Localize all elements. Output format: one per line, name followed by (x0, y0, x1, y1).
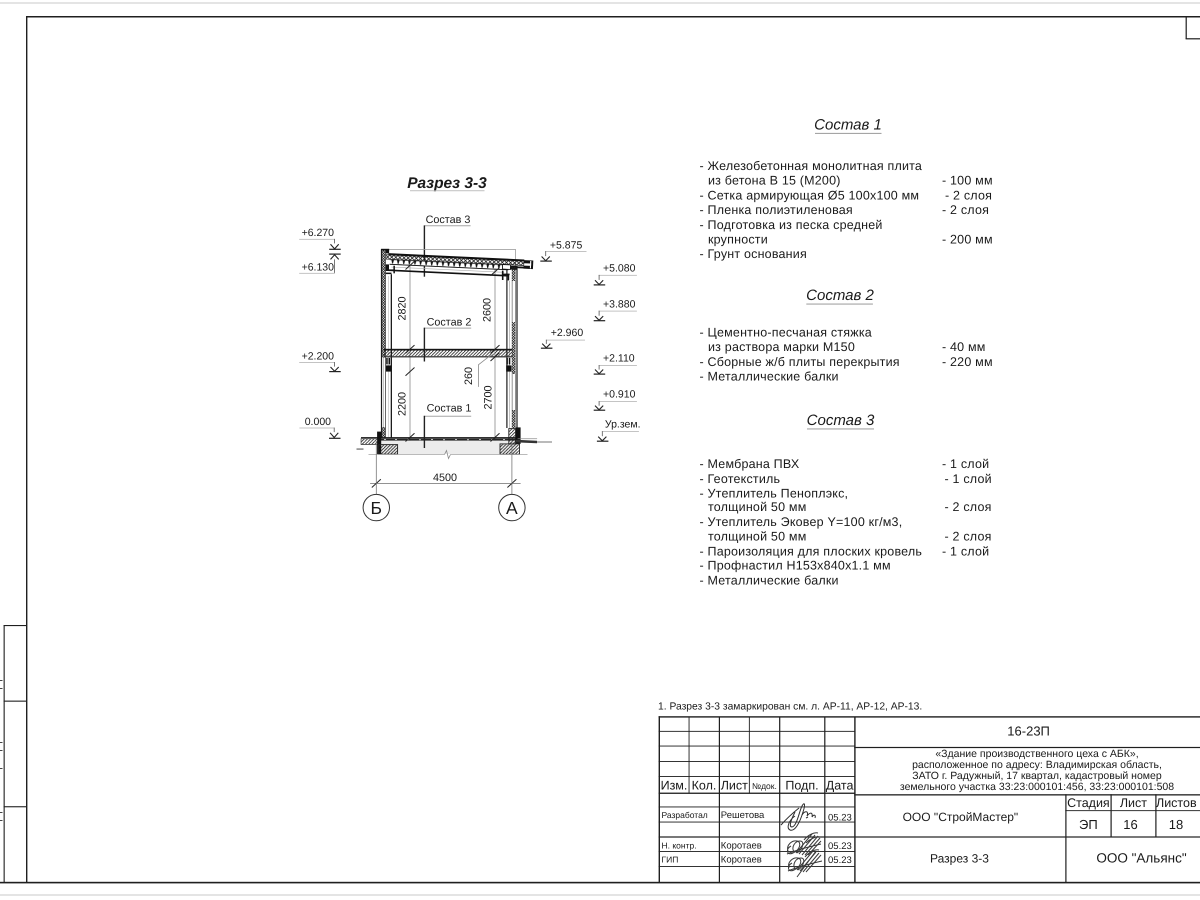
svg-text:Дата: Дата (826, 779, 854, 793)
svg-text:- Утеплитель Пеноплэкс,: - Утеплитель Пеноплэкс, (700, 487, 849, 501)
svg-text:- 1 слой: - 1 слой (945, 472, 992, 486)
svg-text:А: А (506, 498, 518, 518)
svg-text:Состав 3: Состав 3 (426, 214, 471, 226)
svg-text:крупности: крупности (708, 233, 768, 247)
svg-text:толщиной 50 мм: толщиной 50 мм (708, 530, 807, 544)
svg-text:+6.130: +6.130 (302, 261, 335, 273)
svg-text:ООО "Альянс": ООО "Альянс" (1096, 851, 1186, 866)
svg-text:- Геотекстиль: - Геотекстиль (700, 472, 781, 486)
svg-text:+5.875: +5.875 (550, 240, 583, 252)
svg-text:толщиной 50 мм: толщиной 50 мм (708, 500, 807, 514)
svg-text:2200: 2200 (397, 392, 409, 416)
svg-text:Состав 2: Состав 2 (806, 287, 874, 304)
svg-text:- Сборные ж/б плиты перекрытия: - Сборные ж/б плиты перекрытия (700, 355, 900, 369)
svg-text:№док.: №док. (752, 781, 777, 791)
svg-text:- Пароизоляция для плоских кро: - Пароизоляция для плоских кровель (700, 544, 923, 558)
svg-text:260: 260 (463, 367, 475, 385)
svg-text:1. Разрез 3-3 замаркирован см.: 1. Разрез 3-3 замаркирован см. л. АР-11,… (658, 701, 922, 712)
svg-text:Кол.: Кол. (692, 779, 717, 793)
svg-text:- 100 мм: - 100 мм (942, 174, 993, 188)
svg-text:- Утеплитель Эковер Y=100 кг/м: - Утеплитель Эковер Y=100 кг/м3, (700, 515, 903, 529)
svg-text:Н. контр.: Н. контр. (662, 840, 697, 850)
svg-text:ГИП: ГИП (662, 855, 679, 865)
svg-text:- Цементно-песчаная стяжка: - Цементно-песчаная стяжка (700, 325, 872, 339)
svg-text:Б: Б (371, 498, 382, 518)
svg-text:Разработал: Разработал (662, 810, 708, 820)
svg-text:- 2 слоя: - 2 слоя (945, 189, 992, 203)
svg-text:- Железобетонная монолитная п: - Железобетонная монолитная плита (700, 159, 923, 173)
svg-text:2700: 2700 (483, 385, 495, 409)
svg-text:- Пленка полиэтиленовая: - Пленка полиэтиленовая (700, 203, 853, 217)
svg-text:Стадия: Стадия (1067, 796, 1110, 810)
svg-text:- 1 слой: - 1 слой (942, 544, 989, 558)
svg-text:- 200 мм: - 200 мм (942, 233, 993, 247)
svg-text:из бетона В 15 (М200): из бетона В 15 (М200) (708, 174, 841, 188)
svg-text:ООО "СтройМастер": ООО "СтройМастер" (903, 810, 1019, 824)
svg-text:+5.080: +5.080 (603, 262, 636, 274)
svg-text:+3.880: +3.880 (603, 298, 636, 310)
svg-text:Ур.зем.: Ур.зем. (605, 419, 641, 431)
svg-text:Подп.: Подп. (785, 779, 818, 793)
svg-text:из раствора марки М150: из раствора марки М150 (708, 340, 855, 354)
svg-text:- 2 слоя: - 2 слоя (945, 500, 992, 514)
svg-text:Разрез 3-3: Разрез 3-3 (930, 852, 989, 866)
svg-text:- Грунт основания: - Грунт основания (700, 247, 807, 261)
svg-text:Коротаев: Коротаев (721, 855, 762, 866)
svg-text:Разрез 3-3: Разрез 3-3 (407, 175, 487, 192)
svg-text:2600: 2600 (481, 298, 493, 322)
svg-text:Состав 2: Состав 2 (427, 316, 472, 328)
svg-text:- 220 мм: - 220 мм (942, 355, 993, 369)
svg-text:- 1 слой: - 1 слой (942, 457, 989, 471)
svg-text:+2.200: +2.200 (302, 351, 335, 363)
svg-text:Решетова: Решетова (721, 810, 765, 821)
svg-text:Изм.: Изм. (661, 779, 688, 793)
svg-text:+6.270: +6.270 (302, 227, 335, 239)
svg-text:16: 16 (1123, 817, 1137, 832)
svg-text:- Подготовка из песка средней: - Подготовка из песка средней (700, 218, 883, 232)
svg-text:Коротаев: Коротаев (721, 840, 762, 851)
svg-text:- 40 мм: - 40 мм (942, 340, 986, 354)
svg-text:16-23П: 16-23П (1007, 724, 1050, 739)
svg-text:Лист: Лист (1120, 796, 1147, 810)
svg-text:Состав 1: Состав 1 (427, 403, 472, 415)
svg-text:- 2 слоя: - 2 слоя (945, 530, 992, 544)
svg-text:- 2 слоя: - 2 слоя (942, 203, 989, 217)
svg-text:4500: 4500 (433, 472, 457, 484)
svg-text:05.23: 05.23 (828, 855, 852, 866)
svg-text:0.000: 0.000 (305, 416, 331, 428)
svg-text:+0.910: +0.910 (603, 389, 636, 401)
svg-text:- Профнастил Н153х840х1.1 мм: - Профнастил Н153х840х1.1 мм (700, 559, 891, 573)
svg-text:Листов: Листов (1156, 796, 1197, 810)
svg-text:2820: 2820 (397, 296, 409, 320)
svg-text:05.23: 05.23 (828, 841, 852, 852)
svg-text:Лист: Лист (721, 779, 748, 793)
svg-text:+2.960: +2.960 (551, 327, 584, 339)
svg-text:земельного участка 33:23:00010: земельного участка 33:23:000101:456, 33:… (900, 781, 1174, 793)
svg-text:- Металлические балки: - Металлические балки (700, 573, 839, 587)
svg-text:- Металлические балки: - Металлические балки (700, 370, 839, 384)
svg-text:- Сетка армирующая Ø5 100х100: - Сетка армирующая Ø5 100х100 мм (700, 189, 920, 203)
svg-text:18: 18 (1169, 817, 1183, 832)
svg-text:ЭП: ЭП (1079, 817, 1098, 832)
svg-text:Состав 1: Состав 1 (814, 117, 882, 134)
svg-text:- Мембрана ПВХ: - Мембрана ПВХ (700, 457, 800, 471)
svg-text:05.23: 05.23 (828, 813, 852, 824)
svg-text:Состав 3: Состав 3 (807, 412, 875, 429)
svg-text:+2.110: +2.110 (603, 353, 635, 365)
